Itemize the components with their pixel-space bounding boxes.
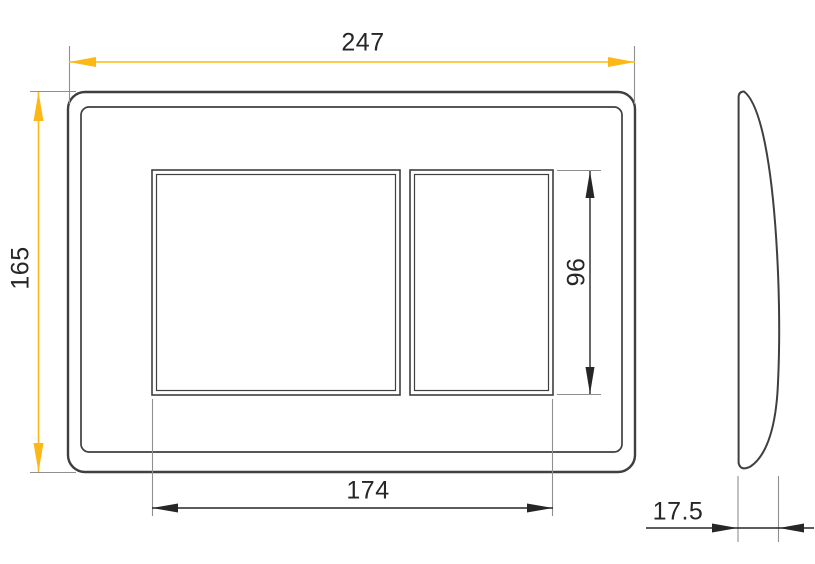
small-button	[410, 170, 553, 395]
side-profile-outline	[739, 92, 780, 469]
dim-button-height-label: 96	[565, 258, 590, 287]
dim-button-width-arrow-right	[527, 504, 553, 513]
dim-overall-width-arrow-right	[608, 57, 635, 67]
dim-button-width-label: 174	[346, 479, 389, 504]
technical-drawing: 247 165 96 174 17.5	[0, 0, 815, 564]
drawing-canvas	[0, 0, 815, 564]
dim-overall-height-arrow-top	[34, 92, 44, 121]
dim-thickness-label: 17.5	[653, 500, 704, 525]
dim-thickness-arrow-right	[779, 524, 804, 533]
dim-overall-height-arrow-bottom	[34, 443, 44, 472]
dim-thickness-arrow-left	[712, 524, 738, 533]
small-button-outer	[410, 170, 553, 395]
side-view	[739, 92, 780, 469]
large-button-outer	[152, 170, 400, 395]
large-button	[152, 170, 400, 395]
dim-overall-width-arrow-left	[69, 57, 96, 67]
dim-button-width-arrow-left	[152, 504, 178, 513]
dim-overall-width-label: 247	[341, 31, 384, 56]
dim-overall-height-label: 165	[9, 246, 34, 289]
